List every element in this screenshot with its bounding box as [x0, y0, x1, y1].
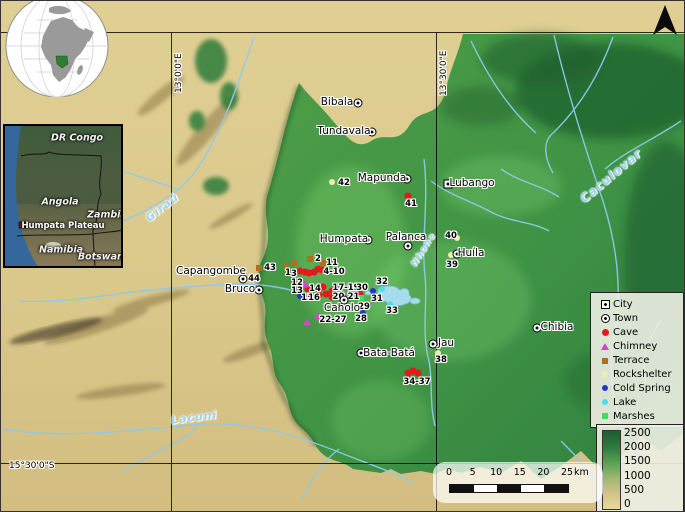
elevation-tick-1000: 1000	[624, 470, 651, 482]
north-arrow-icon	[647, 3, 683, 37]
legend-label-rockshelter: Rockshelter	[613, 369, 672, 380]
inset-label-botswana: Botswana	[78, 252, 123, 263]
inset-label-zambia: Zambia	[87, 210, 123, 221]
inset-label-dr-congo: DR Congo	[51, 133, 103, 144]
site-label-2: 2	[315, 254, 321, 264]
elevation-scale: 25002000150010005000	[596, 424, 684, 512]
town-marker-Bruco	[255, 286, 264, 295]
inset-label-humpata-plateau: Humpata Plateau	[21, 221, 104, 231]
elevation-tick-2000: 2000	[624, 441, 651, 453]
city-label-Lubango: Lubango	[449, 177, 494, 189]
town-label-Palanca: Palanca	[386, 231, 427, 243]
city-icon	[601, 300, 610, 309]
town-label-Capangombe: Capangombe	[176, 265, 246, 277]
town-marker-Jau	[429, 340, 438, 349]
scale-bar: 0510152025 km	[433, 462, 603, 503]
city-legend-icon	[597, 300, 613, 309]
site-label-34-37: 34-37	[403, 377, 430, 387]
legend-panel: CityTownCaveChimneyTerraceRockshelterCol…	[590, 292, 684, 428]
site-label-43: 43	[264, 263, 276, 273]
lake-icon	[602, 399, 608, 405]
town-marker-Bibala	[354, 99, 363, 108]
cold_spring-legend-icon	[597, 385, 613, 391]
legend-item-chimney: Chimney	[597, 340, 683, 354]
globe-inset	[1, 1, 119, 97]
cave-marker	[415, 370, 422, 377]
site-label-31: 31	[371, 294, 383, 304]
town-label-Chibia: Chibia	[541, 321, 574, 333]
marshes-icon	[602, 413, 608, 419]
legend-item-city: City	[597, 298, 683, 312]
cold_spring-icon	[602, 385, 608, 391]
town-label-Humpata: Humpata	[320, 233, 368, 245]
longitude-label-east: 13°30'0"E	[439, 51, 449, 96]
legend-item-marshes: Marshes	[597, 409, 683, 423]
rockshelter-marker	[329, 179, 335, 185]
scale-segment-0	[450, 485, 474, 492]
town-label-Tundavala: Tundavala	[317, 125, 370, 137]
elevation-tick-1500: 1500	[624, 455, 651, 467]
town-label-Bruco: Bruco	[225, 283, 255, 295]
legend-item-cold_spring: Cold Spring	[597, 381, 683, 395]
scale-bar-segments	[449, 484, 569, 493]
terrace-marker	[256, 265, 262, 271]
cave-icon	[602, 329, 609, 336]
town-label-Huíla: Huíla	[458, 247, 485, 259]
site-label-30: 30	[356, 283, 368, 293]
chimney-legend-icon	[597, 343, 613, 350]
legend-label-cold_spring: Cold Spring	[613, 383, 671, 394]
town-legend-icon	[597, 314, 613, 323]
site-label-32: 32	[376, 277, 388, 287]
site-label-28: 28	[355, 314, 367, 324]
chimney-marker	[303, 319, 311, 326]
town-label-Caholo: Caholo	[324, 302, 360, 314]
terrace-icon	[602, 358, 608, 364]
town-icon	[601, 314, 610, 323]
site-label-39: 39	[446, 260, 458, 270]
terrace-marker	[307, 256, 313, 262]
elevation-gradient-bar	[602, 430, 621, 510]
inset-label-angola: Angola	[41, 197, 78, 208]
town-label-Mapunda: Mapunda	[358, 172, 407, 184]
chimney-icon	[601, 343, 609, 350]
scale-tick-20: 20	[537, 467, 549, 478]
scale-segment-1	[474, 485, 498, 492]
legend-label-lake: Lake	[613, 397, 636, 408]
rockshelter-icon	[602, 371, 608, 377]
terrace-legend-icon	[597, 358, 613, 364]
cave-legend-icon	[597, 329, 613, 336]
scale-tick-0: 0	[446, 467, 452, 478]
scale-tick-5: 5	[470, 467, 476, 478]
country-inset: DR CongoAngolaZambiaHumpata PlateauNamib…	[3, 124, 123, 268]
legend-item-terrace: Terrace	[597, 354, 683, 368]
town-label-Jau: Jau	[438, 337, 454, 349]
scale-segment-2	[497, 485, 521, 492]
legend-item-town: Town	[597, 312, 683, 326]
legend-label-town: Town	[613, 313, 638, 324]
rockshelter-legend-icon	[597, 371, 613, 377]
scale-tick-15: 15	[514, 467, 526, 478]
town-label-Bata-Batá: Bata-Batá	[363, 347, 415, 359]
inset-label-namibia: Namibia	[39, 245, 83, 256]
elevation-tick-2500: 2500	[624, 427, 651, 439]
site-label-33: 33	[386, 306, 398, 316]
scale-tick-10: 10	[490, 467, 502, 478]
scale-segment-4	[544, 485, 568, 492]
legend-label-terrace: Terrace	[613, 355, 649, 366]
site-label-38: 38	[435, 355, 447, 365]
lake-legend-icon	[597, 399, 613, 405]
site-label-16: 16	[308, 293, 320, 303]
scale-tick-25: 25	[561, 467, 573, 478]
legend-label-cave: Cave	[613, 327, 638, 338]
site-label-40: 40	[445, 231, 457, 241]
site-label-22-27: 22-27	[319, 315, 346, 325]
elevation-tick-0: 0	[624, 498, 631, 510]
longitude-label-west: 13°0'0"E	[174, 53, 184, 93]
legend-label-chimney: Chimney	[613, 341, 657, 352]
marshes-legend-icon	[597, 413, 613, 419]
site-label-42: 42	[338, 178, 350, 188]
site-label-41: 41	[405, 199, 417, 209]
site-label-4-10: 4-10	[323, 267, 344, 277]
map-figure: 132114-10121314151617-1920,2122-27282930…	[0, 0, 685, 512]
town-label-Bibala: Bibala	[321, 96, 354, 108]
legend-item-rockshelter: Rockshelter	[597, 367, 683, 381]
legend-item-lake: Lake	[597, 395, 683, 409]
legend-item-cave: Cave	[597, 326, 683, 340]
scale-segment-3	[521, 485, 545, 492]
legend-label-city: City	[613, 299, 633, 310]
terrace-marker	[291, 260, 297, 266]
legend-label-marshes: Marshes	[613, 411, 655, 422]
scale-bar-unit: km	[574, 467, 589, 478]
elevation-tick-500: 500	[624, 484, 644, 496]
latitude-label-south: 15°30'0"S	[9, 461, 54, 471]
